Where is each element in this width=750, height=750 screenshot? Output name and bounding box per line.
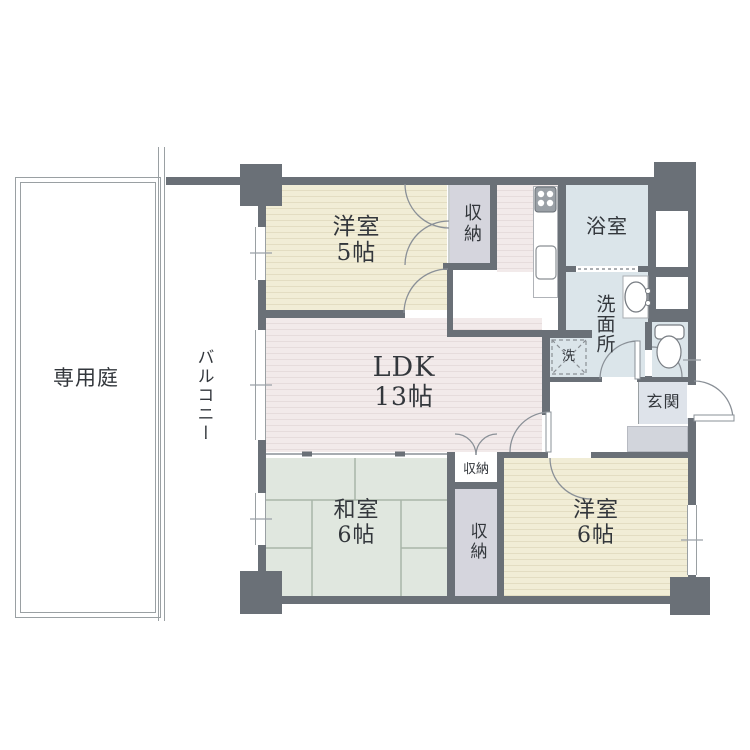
label-ldk: LDK 13帖 bbox=[266, 340, 542, 424]
kitchen-sink-icon bbox=[536, 246, 556, 279]
label-washroom: 洗面所 bbox=[590, 276, 618, 372]
label-japanese6-size: 6帖 bbox=[338, 524, 376, 549]
label-closet-small: 収納 bbox=[453, 460, 499, 480]
label-closet-top-text: 収納 bbox=[462, 203, 480, 245]
label-japanese6: 和室 6帖 bbox=[266, 494, 447, 554]
label-balcony: バルコニー bbox=[190, 336, 216, 454]
floorplan: 専用庭 バルコニー 洋室 5帖 収納 浴室 洗面所 洗 玄関 LDK 13帖 収… bbox=[0, 0, 750, 750]
label-japanese6-name: 和室 bbox=[333, 499, 379, 524]
label-bath-text: 浴室 bbox=[586, 215, 628, 237]
bifold-closet-arc-right bbox=[476, 434, 497, 455]
label-garden: 専用庭 bbox=[36, 364, 136, 394]
basin-icon bbox=[623, 276, 651, 318]
label-entrance: 玄関 bbox=[639, 390, 688, 414]
entrance-door-arc bbox=[694, 381, 733, 420]
label-bath: 浴室 bbox=[566, 212, 648, 240]
bifold-closet-arc-left bbox=[455, 434, 476, 455]
label-western6-name: 洋室 bbox=[573, 499, 619, 524]
western6-door-arc bbox=[550, 458, 591, 499]
label-western6-size: 6帖 bbox=[577, 524, 615, 549]
entrance-door-leaf bbox=[694, 415, 734, 421]
label-closet-top: 収納 bbox=[458, 194, 484, 254]
toilet-icon bbox=[655, 325, 684, 368]
label-closet-small-text: 収納 bbox=[463, 463, 489, 478]
label-western5: 洋室 5帖 bbox=[266, 212, 447, 270]
label-western5-name: 洋室 bbox=[333, 215, 381, 241]
label-garden-text: 専用庭 bbox=[53, 367, 119, 391]
label-western5-size: 5帖 bbox=[337, 241, 377, 267]
stove-icon bbox=[535, 187, 556, 212]
label-entrance-text: 玄関 bbox=[646, 393, 680, 411]
label-ldk-name: LDK bbox=[373, 353, 436, 383]
label-laundry: 洗 bbox=[558, 347, 580, 367]
label-ldk-size: 13帖 bbox=[374, 383, 434, 411]
label-closet-large-text: 収納 bbox=[468, 522, 485, 562]
label-washroom-text: 洗面所 bbox=[595, 294, 614, 354]
label-balcony-text: バルコニー bbox=[195, 348, 212, 443]
label-closet-large: 収納 bbox=[463, 504, 489, 580]
label-laundry-text: 洗 bbox=[562, 350, 576, 365]
washroom-door-leaf bbox=[635, 341, 640, 379]
label-western6: 洋室 6帖 bbox=[504, 494, 688, 554]
western5-door-arc bbox=[404, 269, 448, 313]
ldk-door-leaf bbox=[546, 412, 551, 452]
